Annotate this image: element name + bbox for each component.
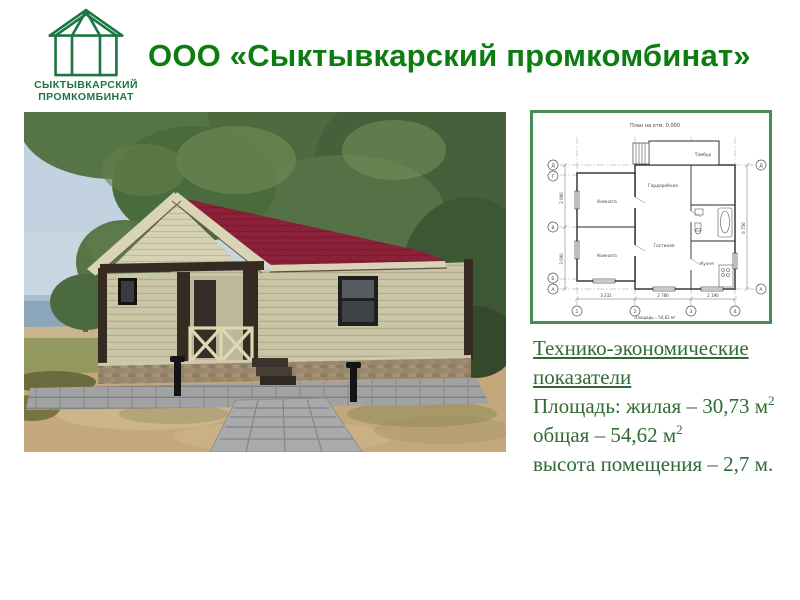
svg-text:Д: Д — [551, 163, 555, 169]
svg-text:Комната: Комната — [597, 253, 617, 259]
indicators-heading-line1: Технико-экономические — [533, 334, 799, 363]
svg-text:Гостиная: Гостиная — [654, 243, 675, 249]
living-area-line: Площадь: жилая – 30,73 м2 — [533, 392, 799, 421]
sup-2: 2 — [768, 393, 775, 408]
small-window — [118, 278, 137, 305]
svg-text:3 090: 3 090 — [559, 253, 564, 265]
plan-title: План на отм. 0.000 — [630, 123, 680, 129]
logo-text-line2: ПРОМКОМБИНАТ — [30, 92, 142, 104]
sup-2: 2 — [676, 422, 683, 437]
svg-text:2 780: 2 780 — [657, 293, 669, 298]
company-logo: СЫКТЫВКАРСКИЙ ПРОМКОМБИНАТ — [30, 6, 142, 103]
tech-indicators: Технико-экономические показатели Площадь… — [533, 334, 799, 479]
svg-text:В: В — [551, 225, 554, 231]
indicators-heading-line2: показатели — [533, 363, 799, 392]
svg-text:3 232: 3 232 — [600, 293, 612, 298]
house-logo-icon — [38, 6, 134, 80]
main-window — [338, 276, 378, 326]
total-area-line: общая – 54,62 м2 — [533, 421, 799, 450]
svg-text:2 190: 2 190 — [707, 293, 719, 298]
presentation-slide: СЫКТЫВКАРСКИЙ ПРОМКОМБИНАТ ООО «Сыктывка… — [0, 0, 800, 600]
svg-text:4: 4 — [734, 309, 737, 315]
svg-text:Кухня: Кухня — [700, 261, 714, 267]
svg-text:1: 1 — [576, 309, 579, 315]
svg-text:6 756: 6 756 — [741, 222, 746, 234]
floor-plan-frame: План на отм. 0.000 — [530, 110, 772, 324]
slide-title: ООО «Сыктывкарский промкомбинат» — [148, 38, 793, 74]
svg-text:Гардеробная: Гардеробная — [648, 183, 678, 189]
svg-text:3: 3 — [690, 309, 693, 315]
plan-caption: Площадь – 54,62 м² — [634, 315, 676, 320]
svg-text:Д: Д — [759, 163, 763, 169]
entrance-steps — [633, 143, 649, 164]
floor-plan-drawing: План на отм. 0.000 — [533, 113, 769, 321]
logo-text-line1: СЫКТЫВКАРСКИЙ — [30, 80, 142, 92]
ceiling-height-line: высота помещения – 2,7 м. — [533, 450, 799, 479]
svg-text:Комната: Комната — [597, 199, 617, 205]
house-render — [24, 112, 506, 452]
svg-text:Тамбур: Тамбур — [694, 152, 712, 158]
svg-text:Б: Б — [551, 276, 554, 282]
svg-text:2 980: 2 980 — [559, 192, 564, 204]
svg-text:Г: Г — [552, 174, 555, 180]
house-photo — [24, 112, 506, 452]
